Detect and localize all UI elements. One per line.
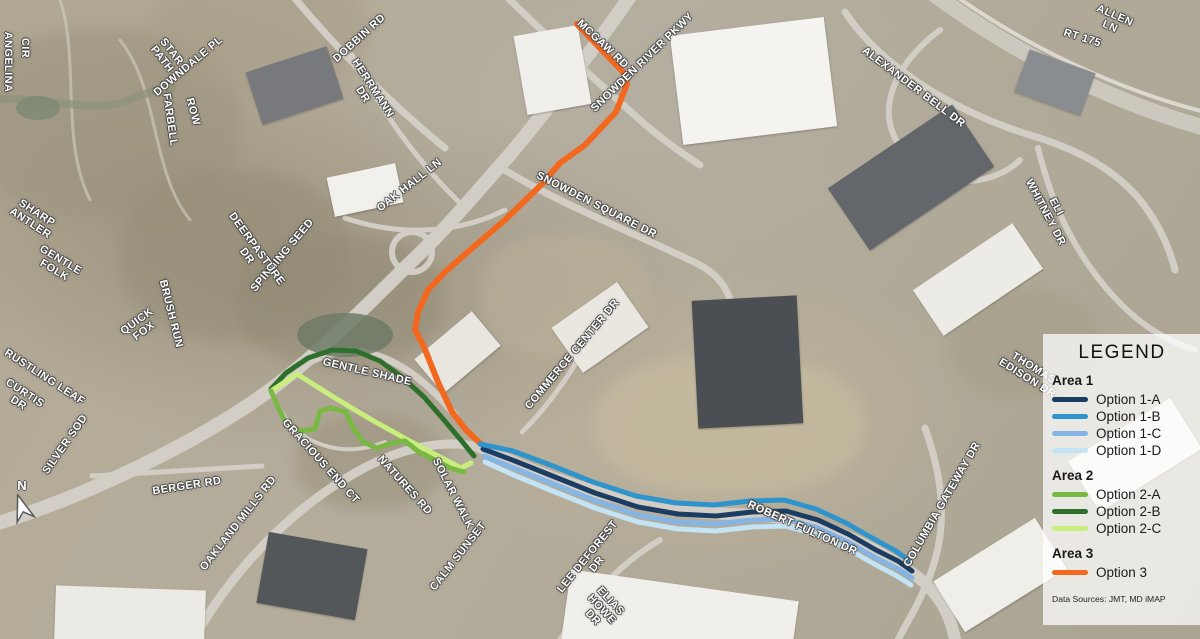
legend-item-label: Option 2-A [1096,487,1161,502]
legend-swatch [1052,397,1088,402]
legend-item-option-2-b: Option 2-B [1052,503,1192,520]
road-label-curtis-dr: CURTIS DR [0,377,46,421]
legend-item-label: Option 1-B [1096,409,1161,424]
legend-swatch [1052,526,1088,531]
legend-swatch [1052,448,1088,453]
legend-item-label: Option 3 [1096,565,1147,580]
road-label-snowden-square-dr: SNOWDEN SQUARE DR [534,170,658,241]
legend-swatch [1052,509,1088,514]
legend-item-option-1-c: Option 1-C [1052,425,1192,442]
north-arrow: N [2,478,42,528]
north-arrow-icon [5,490,39,527]
road-label-gentle-folk: GENTLE FOLK [31,244,84,289]
legend-area-heading: Area 1 [1052,373,1192,388]
road-label-rt-175: RT 175 [1062,28,1102,51]
legend-item-label: Option 2-B [1096,504,1161,519]
legend-swatch [1052,414,1088,419]
legend-item-option-2-c: Option 2-C [1052,520,1192,537]
road-label-columbia-gateway-dr: COLUMBIA GATEWAY DR [902,441,983,570]
legend-sections: Area 1Option 1-AOption 1-BOption 1-COpti… [1052,373,1192,581]
legend-swatch [1052,570,1088,575]
road-label-eli-whitney-dr: ELI WHITNEY DR [1022,172,1077,248]
road-label-silver-sod: SILVER SOD [41,413,91,477]
legend-swatch [1052,431,1088,436]
aerial-map: ANGELINACIRSTAR PATHDOWNDALE PLFARBELLRO… [0,0,1200,639]
legend-area-heading: Area 3 [1052,546,1192,561]
legend: LEGEND Area 1Option 1-AOption 1-BOption … [1043,334,1200,625]
legend-area-heading: Area 2 [1052,468,1192,483]
legend-item-label: Option 1-C [1096,426,1161,441]
road-label-calm-sunset: CALM SUNSET [429,520,490,593]
road-label-allen-ln: ALLEN LN [1090,3,1135,40]
legend-item-option-1-b: Option 1-B [1052,408,1192,425]
road-label-rustling-leaf: RUSTLING LEAF [2,348,87,409]
legend-item-option-2-a: Option 2-A [1052,486,1192,503]
legend-swatch [1052,492,1088,497]
road-label-robert-fulton-dr: ROBERT FULTON DR [745,499,858,558]
legend-item-option-1-d: Option 1-D [1052,442,1192,459]
legend-title: LEGEND [1052,342,1192,364]
legend-item-option-1-a: Option 1-A [1052,391,1192,408]
legend-item-option-3: Option 3 [1052,564,1192,581]
legend-item-label: Option 1-D [1096,443,1161,458]
north-label: N [2,478,42,493]
legend-item-label: Option 1-A [1096,392,1161,407]
legend-source: Data Sources: JMT, MD iMAP [1052,594,1192,604]
legend-item-label: Option 2-C [1096,521,1161,536]
road-label-berger-rd: BERGER RD [152,476,223,499]
